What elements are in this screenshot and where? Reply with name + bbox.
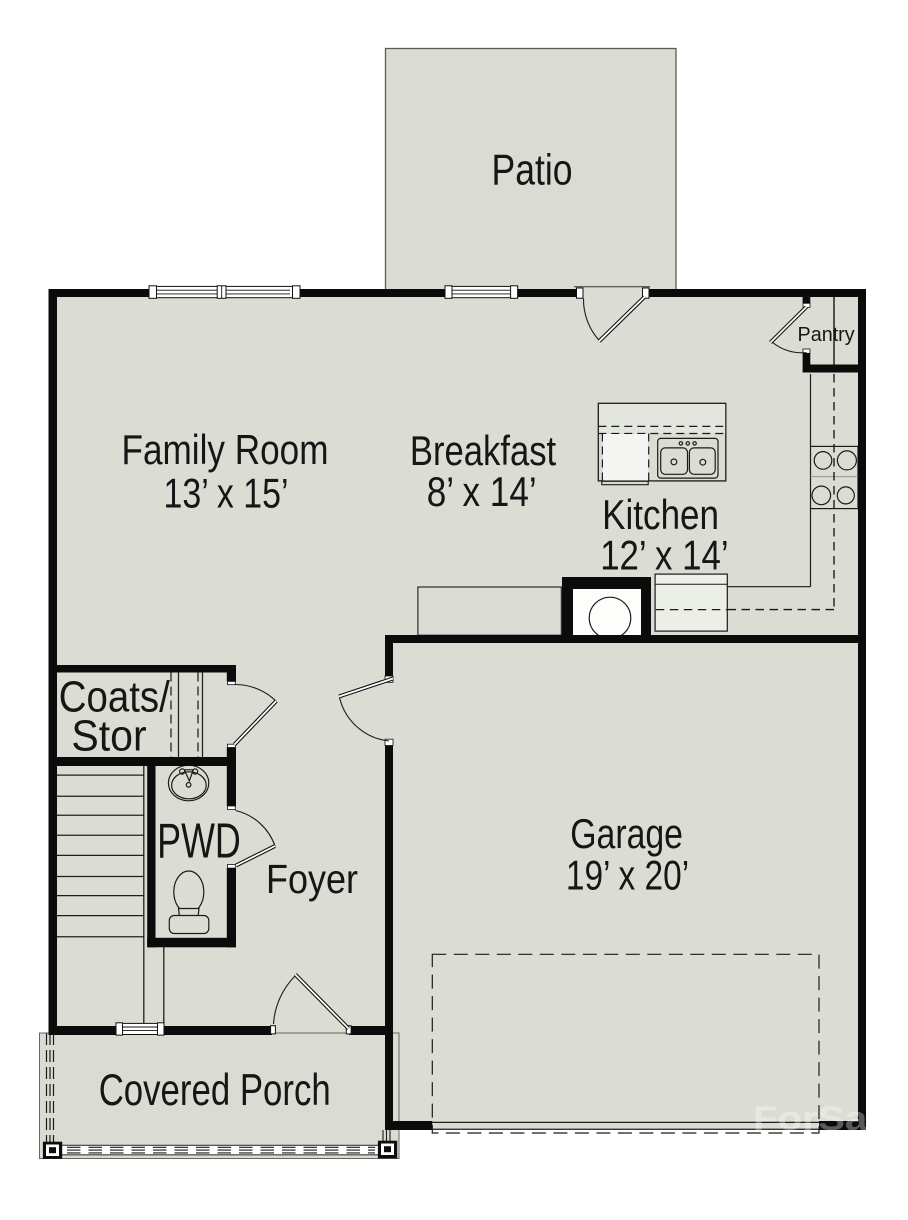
svg-text:Stor: Stor bbox=[71, 712, 146, 761]
svg-text:Patio: Patio bbox=[492, 147, 573, 195]
svg-text:Garage: Garage bbox=[570, 810, 683, 857]
svg-text:Pantry: Pantry bbox=[798, 324, 855, 346]
svg-text:12’ x 14’: 12’ x 14’ bbox=[600, 531, 728, 578]
svg-text:19’ x 20’: 19’ x 20’ bbox=[566, 852, 689, 899]
svg-text:Family Room: Family Room bbox=[122, 426, 329, 473]
svg-text:13’ x 15’: 13’ x 15’ bbox=[164, 469, 289, 516]
svg-text:8’ x 14’: 8’ x 14’ bbox=[427, 468, 537, 515]
svg-text:Covered Porch: Covered Porch bbox=[99, 1066, 331, 1115]
svg-text:Foyer: Foyer bbox=[266, 856, 358, 902]
svg-text:ForSale: ForSale bbox=[753, 1100, 901, 1138]
svg-text:Breakfast: Breakfast bbox=[410, 427, 557, 474]
svg-text:PWD: PWD bbox=[157, 815, 241, 869]
